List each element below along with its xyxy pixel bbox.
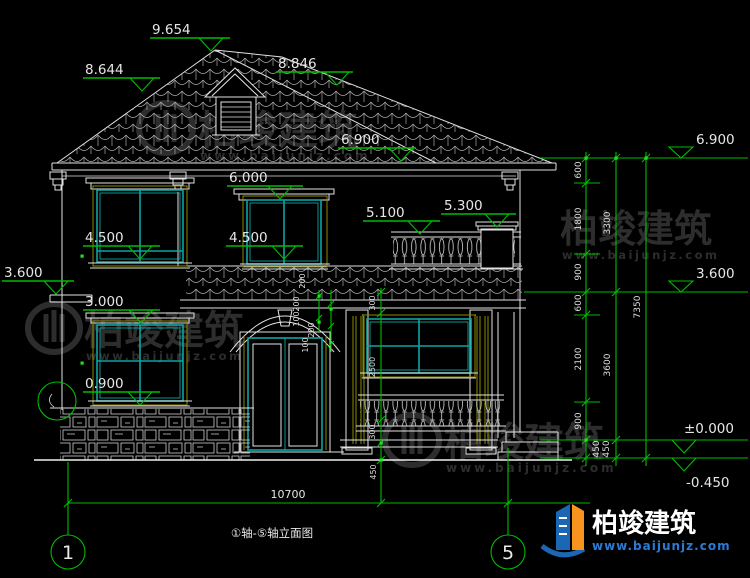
- cad-canvas: 柏竣建筑 www.baijunjz.com 柏竣建筑 www.baijunjz.…: [0, 0, 750, 578]
- level-mark-sill-2f-center: 4.500: [226, 230, 303, 259]
- interfloor-tile-band: [180, 266, 526, 308]
- level-label: 3.600: [4, 265, 43, 281]
- level-label: 6.000: [229, 170, 268, 186]
- dimension-chain-outer: 7350: [633, 152, 650, 466]
- dim-text: 100: [301, 337, 310, 352]
- level-label: 0.900: [85, 376, 124, 392]
- dim-text: 7350: [633, 295, 643, 318]
- eave-corbels: [50, 172, 518, 190]
- watermark-url: www.baijunjz.com: [446, 461, 617, 475]
- dim-text: 900: [574, 412, 584, 429]
- porch-pilaster-left: [346, 310, 368, 450]
- grid-bubble-5: 5: [491, 535, 525, 569]
- dim-text: 450: [369, 464, 378, 479]
- level-label: 3.600: [696, 266, 735, 282]
- dim-text: 1800: [574, 207, 584, 230]
- dimension-chain-inner: 600 1800 900 600 2100 900 450: [574, 152, 602, 466]
- level-label: 5.300: [444, 198, 483, 214]
- stone-base: [50, 408, 254, 460]
- window-1f-right: [360, 315, 478, 378]
- level-mark-floor-2f-left: 3.600: [2, 265, 74, 294]
- dim-text: 450: [602, 440, 612, 457]
- brand-logo: 柏竣建筑 www.baijunjz.com: [542, 504, 731, 555]
- level-label: -0.450: [686, 475, 730, 491]
- level-label: 4.500: [85, 230, 124, 246]
- window-2f-center: [234, 189, 334, 269]
- watermark-logo-icon: [28, 304, 80, 352]
- level-label: 6.900: [341, 132, 380, 148]
- level-label: 6.900: [696, 132, 735, 148]
- dim-text: 3300: [603, 211, 613, 234]
- dim-text: 450: [592, 440, 602, 457]
- dim-text: 200: [298, 273, 307, 288]
- dim-text: 3600: [603, 353, 613, 376]
- dim-text: 600: [574, 294, 584, 311]
- dim-text: 2500: [368, 357, 377, 377]
- detail-callout-circle: [38, 382, 76, 420]
- brand-logo-text: 柏竣建筑: [592, 508, 696, 539]
- level-label: 9.654: [152, 22, 191, 38]
- dim-text: 900: [574, 263, 584, 280]
- dim-text: 200: [292, 296, 301, 311]
- grid-number: 5: [502, 542, 514, 564]
- level-mark-eave-right: 6.900: [669, 132, 735, 158]
- grid-bubble-1: 1: [51, 535, 85, 569]
- watermark-brand: 柏竣建筑: [84, 308, 244, 354]
- dim-text: 300: [368, 295, 377, 310]
- level-mark-sill-2f-left: 4.500: [83, 230, 160, 259]
- level-label: 3.000: [85, 294, 124, 310]
- level-label: 4.500: [229, 230, 268, 246]
- balcony-pier: [481, 229, 513, 268]
- grid-number: 1: [62, 542, 74, 564]
- level-label: 8.846: [278, 56, 317, 72]
- level-mark-peak: 9.654: [150, 22, 230, 51]
- level-mark-ground: ±0.000: [672, 421, 734, 453]
- dim-text: 10700: [271, 488, 306, 501]
- level-label: ±0.000: [684, 421, 734, 437]
- level-label: 8.644: [85, 62, 124, 78]
- level-mark-floor-2f-right: 3.600: [669, 266, 735, 292]
- view-title: ①轴-⑤轴立面图: [231, 526, 313, 540]
- level-mark-balcony-floor: 5.100: [363, 205, 440, 234]
- dim-text: 200: [307, 322, 316, 337]
- dim-text: 2100: [574, 347, 584, 370]
- brand-logo-icon: [542, 504, 584, 555]
- level-label: 5.100: [366, 205, 405, 221]
- keystone: [278, 310, 292, 326]
- level-mark-window-top-2f: 6.000: [227, 170, 303, 199]
- dim-text: 600: [574, 161, 584, 178]
- dim-text: 100: [292, 311, 301, 326]
- dim-text: 300: [368, 424, 377, 439]
- dimension-chain-middle: 3300 3600 450: [602, 152, 620, 466]
- brand-logo-url: www.baijunjz.com: [592, 539, 731, 553]
- level-mark-balcony-rail: 5.300: [441, 198, 516, 227]
- level-mark-grade: -0.450: [672, 458, 730, 491]
- level-mark-roof-left: 8.644: [83, 62, 160, 91]
- balcony: [389, 222, 523, 269]
- elevation-drawing: 柏竣建筑 www.baijunjz.com 柏竣建筑 www.baijunjz.…: [0, 0, 750, 578]
